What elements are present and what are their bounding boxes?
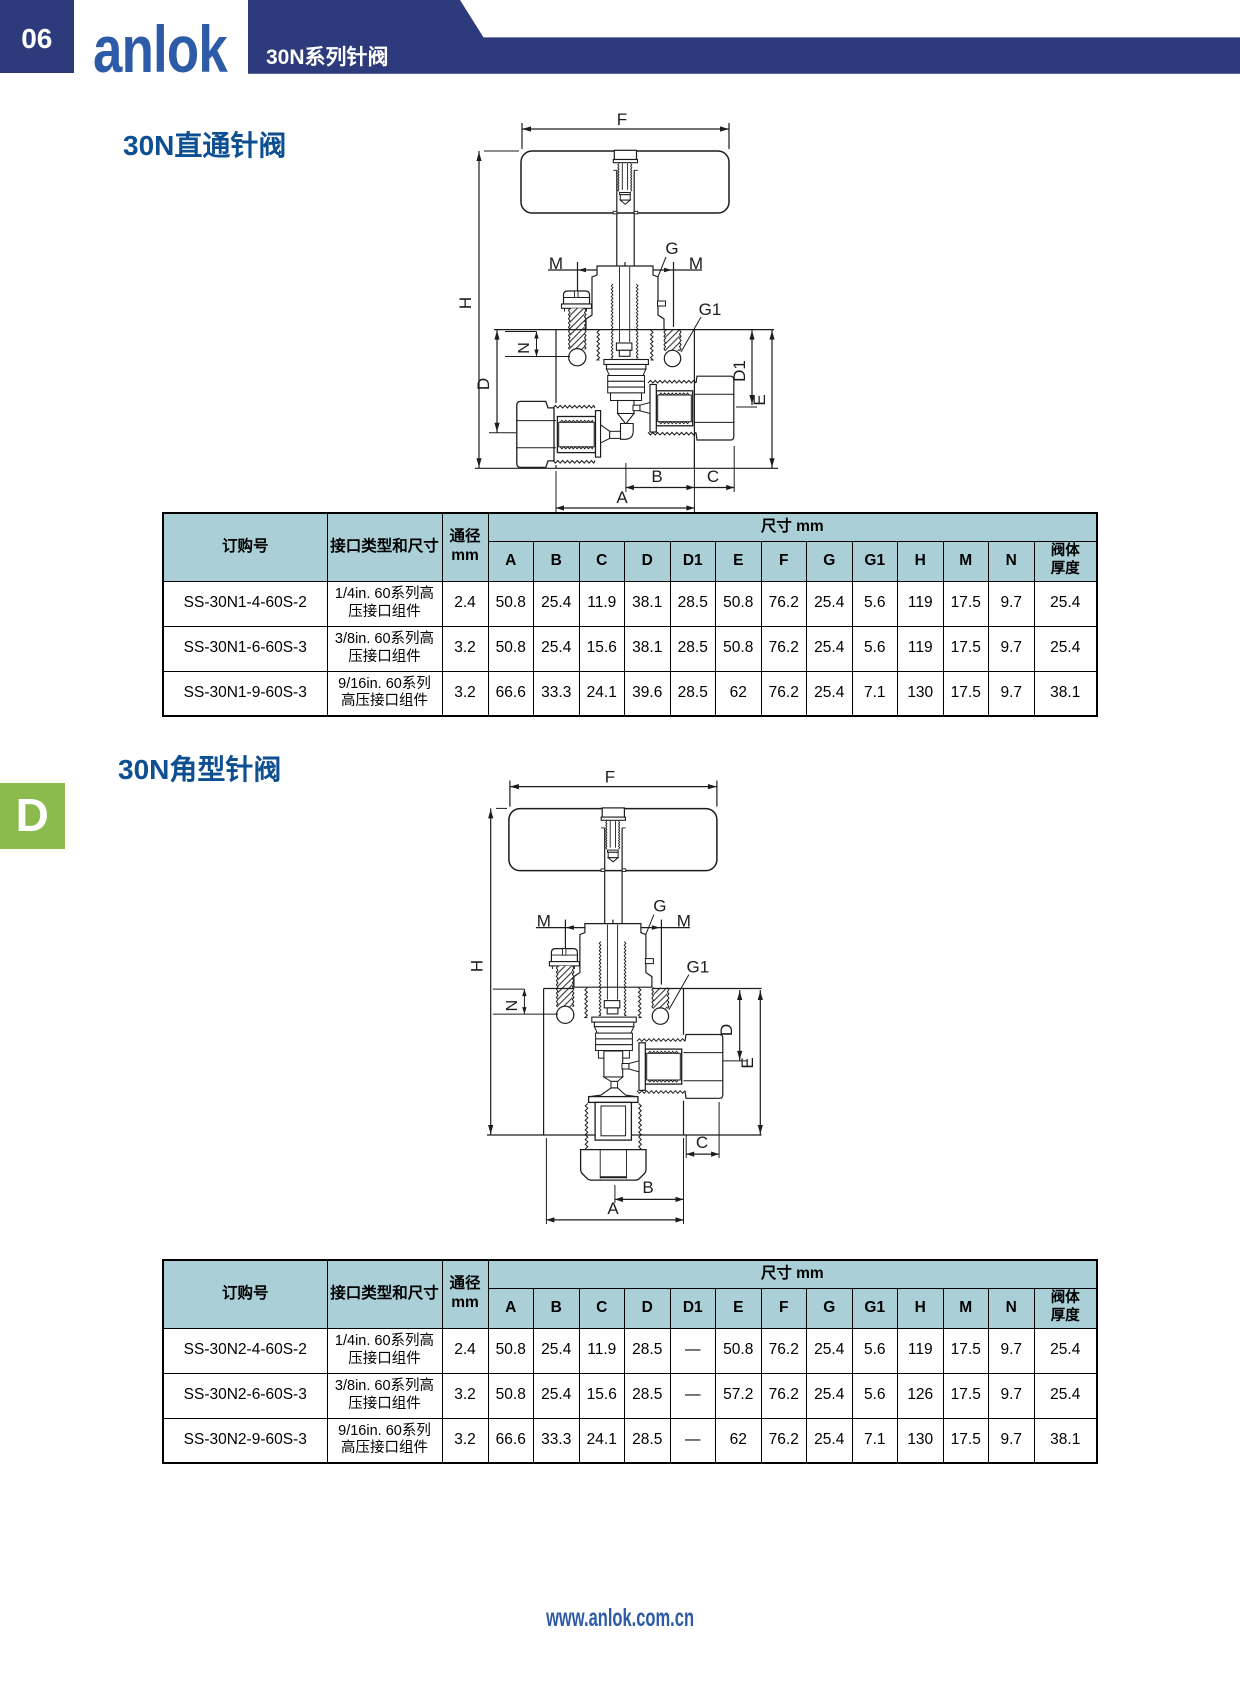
svg-text:A: A	[616, 488, 628, 507]
svg-text:D: D	[717, 1024, 736, 1036]
svg-text:F: F	[605, 770, 615, 787]
svg-text:H: H	[456, 297, 475, 309]
svg-text:M: M	[537, 912, 551, 931]
svg-text:G1: G1	[699, 300, 722, 319]
svg-text:C: C	[707, 467, 719, 486]
svg-text:D: D	[474, 378, 493, 390]
svg-text:F: F	[617, 110, 627, 129]
svg-text:M: M	[689, 254, 703, 273]
svg-text:H: H	[468, 960, 487, 972]
svg-text:B: B	[651, 467, 662, 486]
svg-text:G: G	[653, 897, 666, 916]
svg-text:G1: G1	[687, 958, 710, 977]
svg-text:B: B	[642, 1178, 653, 1197]
svg-text:D1: D1	[730, 360, 749, 382]
svg-text:A: A	[607, 1199, 619, 1218]
svg-text:G: G	[665, 239, 678, 258]
svg-text:M: M	[677, 912, 691, 931]
svg-text:C: C	[696, 1133, 708, 1152]
svg-text:E: E	[738, 1057, 757, 1068]
svg-text:N: N	[516, 342, 533, 354]
svg-text:E: E	[750, 394, 769, 405]
svg-text:N: N	[504, 1000, 521, 1012]
svg-text:M: M	[549, 254, 563, 273]
